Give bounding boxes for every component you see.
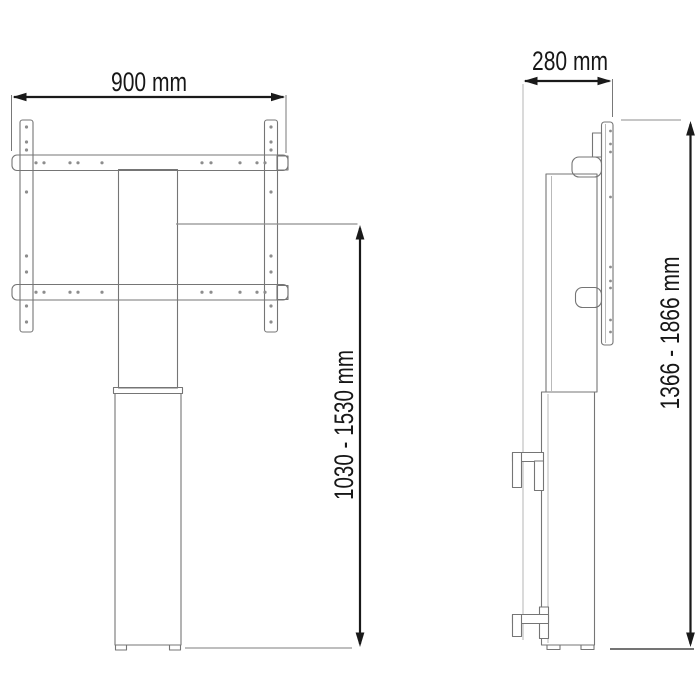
arrowhead-down-icon <box>356 633 365 648</box>
side-rail <box>602 122 614 345</box>
bar-end-cap-top <box>277 156 288 170</box>
column-foot-left <box>116 645 127 650</box>
arrowhead-up-icon <box>356 225 365 240</box>
front-width-label: 900 mm <box>111 67 187 97</box>
arrowhead-left-icon <box>524 77 538 86</box>
column-upper-side <box>546 174 597 392</box>
cable-hook-lower <box>513 607 549 639</box>
column-lower-side <box>542 392 595 645</box>
bar-end-cap-bottom <box>277 286 288 300</box>
vesa-bar-top <box>12 155 288 171</box>
side-depth-label: 280 mm <box>532 46 608 76</box>
side-height-label: 1366 - 1866 mm <box>655 257 685 410</box>
column-lower-front <box>115 394 181 646</box>
vesa-bar-bottom <box>12 285 288 301</box>
front-height-label: 1030 - 1530 mm <box>329 350 359 500</box>
mounting-holes-side <box>609 130 612 334</box>
arrowhead-right-icon <box>271 93 285 102</box>
column-upper-front <box>119 170 178 389</box>
side-height-dimension: 1366 - 1866 mm <box>655 121 695 647</box>
cable-hook-upper <box>513 453 544 491</box>
side-view <box>513 122 614 650</box>
column-foot-right <box>170 645 181 650</box>
arrowhead-down-icon <box>686 633 695 648</box>
front-view <box>12 120 288 650</box>
side-foot-front <box>547 645 560 650</box>
front-width-dimension: 900 mm <box>12 67 287 153</box>
front-height-dimension: 1030 - 1530 mm <box>329 225 364 647</box>
side-top-tab <box>593 133 602 157</box>
arrowhead-right-icon <box>598 77 612 86</box>
arrowhead-up-icon <box>686 121 695 136</box>
technical-drawing: 900 mm 1030 - 1530 mm 280 mm <box>0 0 700 700</box>
side-bracket-arm-middle <box>576 288 602 308</box>
side-depth-dimension: 280 mm <box>523 46 613 640</box>
arrowhead-left-icon <box>13 93 27 102</box>
side-foot-back <box>581 645 594 650</box>
